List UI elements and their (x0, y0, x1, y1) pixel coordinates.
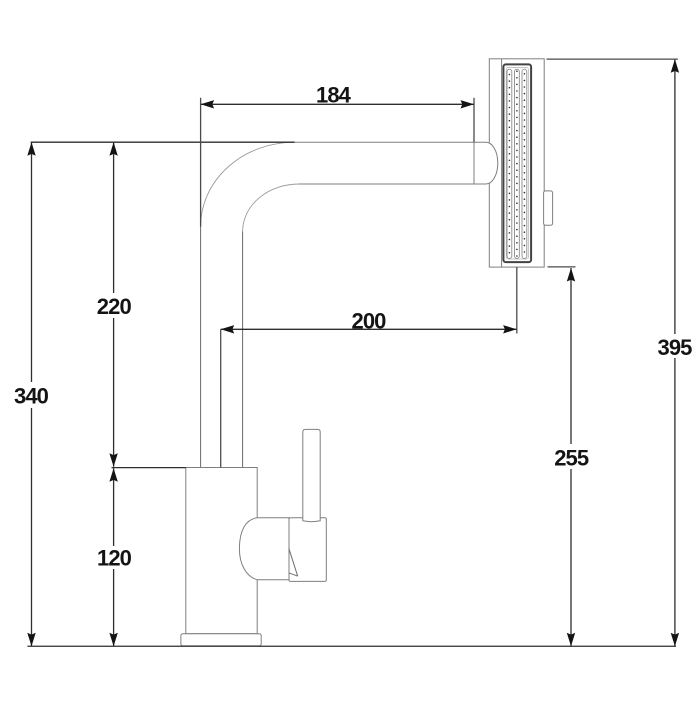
svg-text:184: 184 (316, 82, 352, 107)
svg-text:220: 220 (97, 294, 132, 319)
svg-text:200: 200 (351, 309, 386, 334)
svg-text:395: 395 (657, 335, 692, 360)
svg-text:120: 120 (97, 546, 132, 571)
svg-text:340: 340 (14, 384, 49, 409)
svg-text:255: 255 (554, 445, 589, 470)
